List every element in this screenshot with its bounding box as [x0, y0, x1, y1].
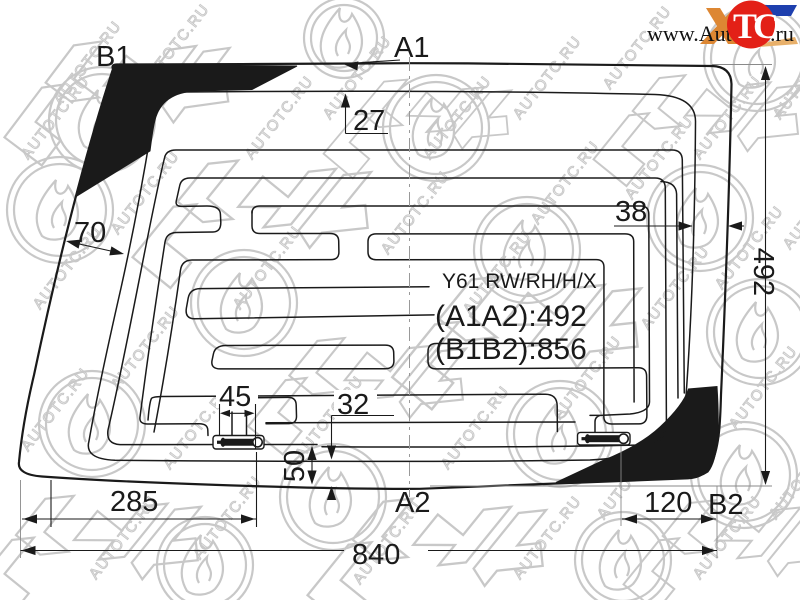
- svg-text:38: 38: [615, 196, 647, 228]
- svg-text:A2: A2: [395, 487, 430, 519]
- svg-text:492: 492: [747, 248, 779, 296]
- svg-text:AUTOTC.RU: AUTOTC.RU: [726, 343, 800, 433]
- svg-text:(B1B2):856: (B1B2):856: [435, 333, 587, 366]
- svg-text:285: 285: [110, 486, 158, 518]
- svg-text:A1: A1: [394, 32, 429, 64]
- svg-text:840: 840: [352, 539, 400, 571]
- svg-text:AUTOTC.RU: AUTOTC.RU: [780, 163, 800, 253]
- svg-text:32: 32: [337, 389, 369, 421]
- svg-text:45: 45: [219, 381, 251, 413]
- svg-text:27: 27: [353, 105, 385, 137]
- svg-text:C: C: [753, 6, 779, 46]
- svg-text:50: 50: [279, 450, 311, 482]
- svg-text:AUTOTC.RU: AUTOTC.RU: [600, 3, 675, 93]
- svg-text:AUTOTC.RU: AUTOTC.RU: [622, 113, 697, 203]
- svg-text:B2: B2: [708, 489, 743, 521]
- svg-text:120: 120: [644, 487, 692, 519]
- svg-text:AUTOTC.RU: AUTOTC.RU: [510, 33, 585, 123]
- svg-text:Y61 RW/RH/H/X: Y61 RW/RH/H/X: [442, 270, 597, 293]
- svg-text:(A1A2):492: (A1A2):492: [435, 300, 587, 333]
- svg-text:AUTOTC.RU: AUTOTC.RU: [438, 383, 513, 473]
- svg-text:B1: B1: [96, 41, 131, 73]
